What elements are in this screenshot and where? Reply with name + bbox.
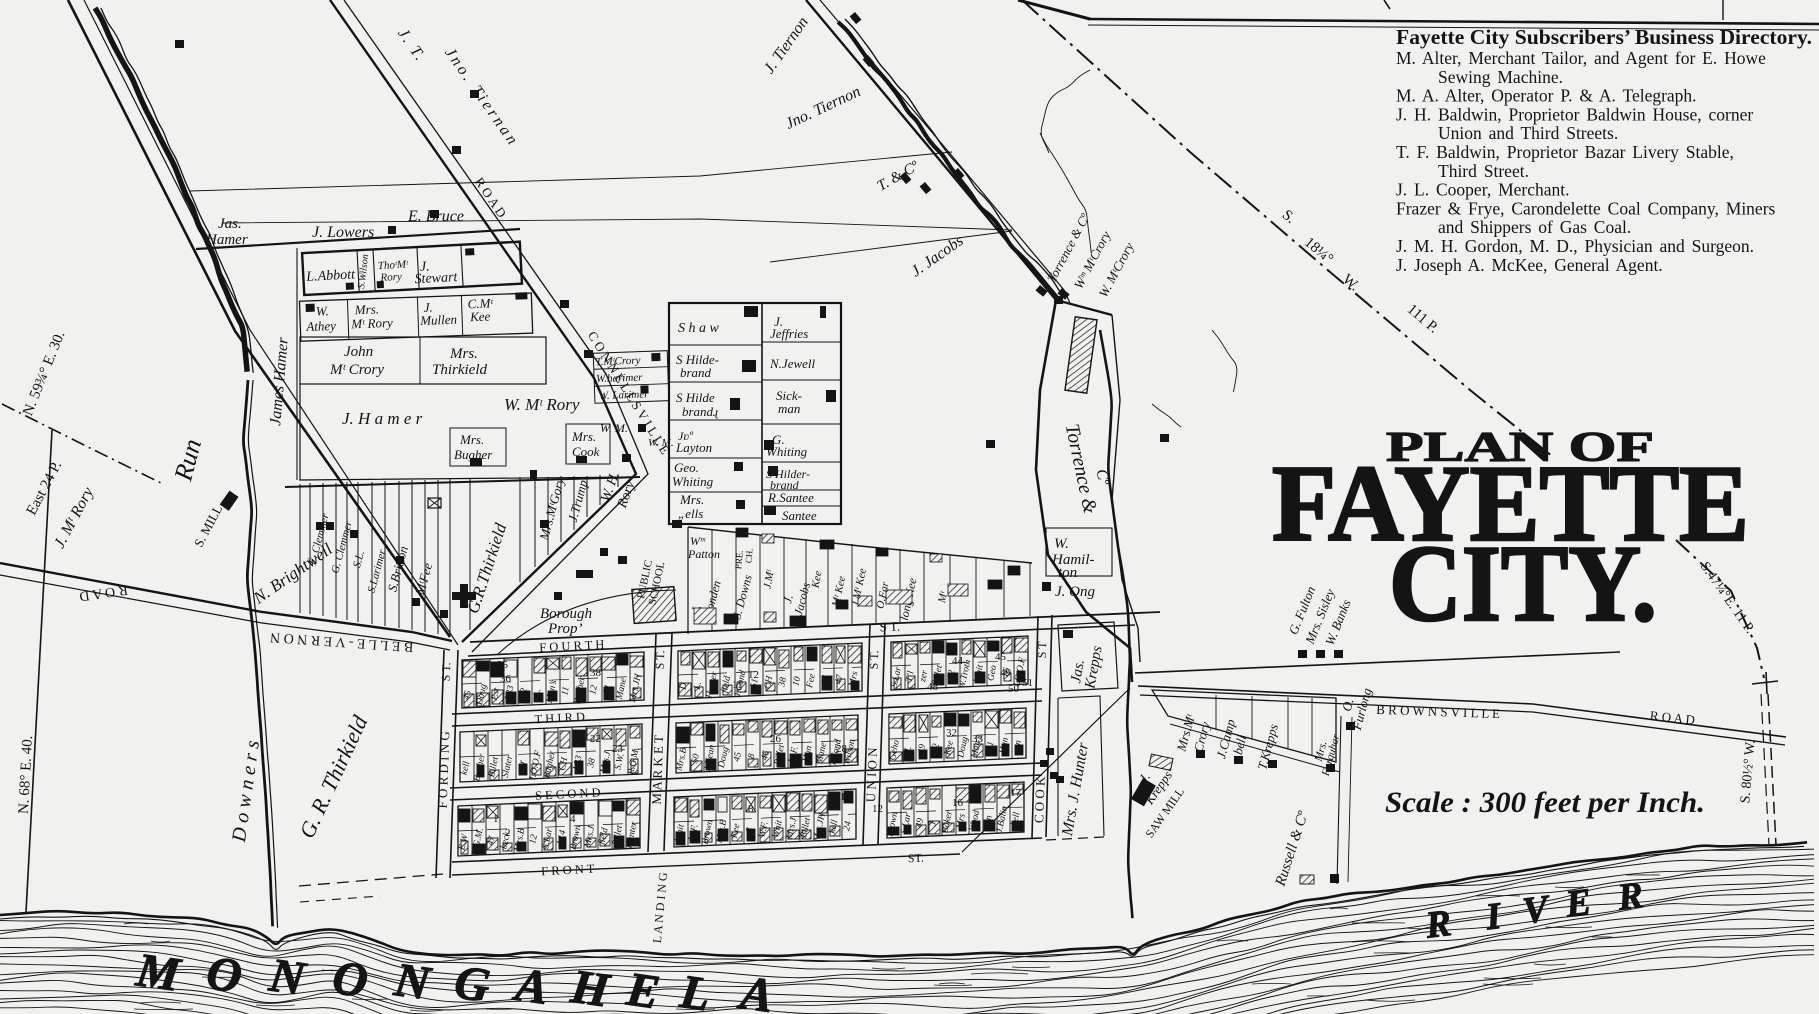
svg-text:J. L. Cooper, Merchant.: J. L. Cooper, Merchant. xyxy=(1396,180,1570,200)
svg-text:N.Jewell: N.Jewell xyxy=(769,356,816,371)
svg-text:L.Abbott: L.Abbott xyxy=(305,267,356,285)
svg-text:M. Alter, Merchant Tailor, and: M. Alter, Merchant Tailor, and Agent for… xyxy=(1396,48,1766,68)
svg-text:12: 12 xyxy=(748,669,759,681)
svg-text:T. F. Baldwin, Proprietor Baza: T. F. Baldwin, Proprietor Bazar Livery S… xyxy=(1396,142,1734,162)
svg-text:Union and Third Streets.: Union and Third Streets. xyxy=(1438,123,1618,143)
svg-text:S T.: S T. xyxy=(879,618,900,634)
svg-text:Santee: Santee xyxy=(782,508,817,523)
svg-text:Prop’: Prop’ xyxy=(547,621,582,637)
svg-text:Sewing Machine.: Sewing Machine. xyxy=(1438,67,1563,87)
svg-text:R.Santee: R.Santee xyxy=(767,490,814,505)
svg-text:W. Mᵗ Rory: W. Mᵗ Rory xyxy=(504,395,580,414)
svg-text:Mrs.: Mrs. xyxy=(449,346,478,362)
svg-text:S T.: S T. xyxy=(439,662,454,681)
svg-text:brand: brand xyxy=(680,365,712,380)
svg-text:ThoᵗMᵗ: ThoᵗMᵗ xyxy=(378,259,410,273)
svg-text:ton: ton xyxy=(1058,565,1077,581)
svg-text:Fayette City Subscribers’ Busi: Fayette City Subscribers’ Business Direc… xyxy=(1396,25,1812,49)
svg-text:10: 10 xyxy=(840,791,852,803)
svg-text:O: O xyxy=(329,951,371,1008)
svg-text:36: 36 xyxy=(500,673,512,685)
svg-text:and Shippers of Gas Coal.: and Shippers of Gas Coal. xyxy=(1438,217,1631,237)
svg-text:J. M. H. Gordon, M. D., Physic: J. M. H. Gordon, M. D., Physician and Su… xyxy=(1396,236,1754,256)
svg-text:J. H a m e r: J. H a m e r xyxy=(342,409,423,428)
svg-text:32: 32 xyxy=(946,727,957,739)
svg-text:51: 51 xyxy=(1022,677,1033,689)
svg-text:T.MᵗCrory: T.MᵗCrory xyxy=(595,355,640,369)
svg-text:F O R D I N G: F O R D I N G xyxy=(435,731,453,809)
svg-text:John: John xyxy=(344,344,373,360)
svg-text:Geo.: Geo. xyxy=(674,460,699,475)
svg-text:S Hilde: S Hilde xyxy=(676,390,715,405)
svg-text:Scale : 300 feet per Inch.: Scale : 300 feet per Inch. xyxy=(1385,786,1705,819)
svg-text:J. H. Baldwin, Proprietor Bald: J. H. Baldwin, Proprietor Baldwin House,… xyxy=(1396,104,1753,124)
svg-text:4: 4 xyxy=(570,813,576,825)
svg-text:J. Ong: J. Ong xyxy=(1055,584,1095,600)
svg-text:F R O N T: F R O N T xyxy=(541,862,595,879)
svg-text:S T.: S T. xyxy=(867,650,882,669)
svg-text:ST.: ST. xyxy=(907,851,924,866)
svg-text:28: 28 xyxy=(836,743,848,755)
svg-text:45: 45 xyxy=(995,651,1007,663)
svg-text:23: 23 xyxy=(612,743,624,755)
svg-text:38: 38 xyxy=(590,667,602,679)
svg-text:Third Street.: Third Street. xyxy=(1438,161,1529,181)
svg-text:J. Joseph A. McKee, General Ag: J. Joseph A. McKee, General Agent. xyxy=(1396,255,1663,275)
svg-text:W. M.: W. M. xyxy=(600,421,628,435)
svg-text:„ells: „ells xyxy=(678,506,703,521)
svg-text:48: 48 xyxy=(927,681,939,693)
svg-text:R: R xyxy=(1614,874,1645,919)
svg-text:49: 49 xyxy=(1000,667,1012,679)
svg-text:Thirkield: Thirkield xyxy=(432,362,487,378)
svg-text:man: man xyxy=(778,401,800,416)
svg-text:16: 16 xyxy=(952,797,964,809)
svg-text:CH.: CH. xyxy=(743,548,754,564)
svg-text:Mrs.: Mrs. xyxy=(459,432,484,447)
svg-text:50: 50 xyxy=(1008,683,1020,695)
svg-text:M. A. Alter, Operator P. & A.: M. A. Alter, Operator P. & A. Telegraph. xyxy=(1396,86,1697,106)
svg-text:33: 33 xyxy=(972,733,984,745)
svg-text:8: 8 xyxy=(748,803,754,815)
svg-text:W.: W. xyxy=(316,303,329,318)
svg-text:17: 17 xyxy=(1010,787,1022,799)
svg-text:CITY.: CITY. xyxy=(1389,523,1657,644)
svg-text:S T.: S T. xyxy=(653,650,668,669)
svg-text:44: 44 xyxy=(952,655,964,667)
svg-text:Mullen: Mullen xyxy=(419,312,457,328)
svg-text:Mᵗ Crory: Mᵗ Crory xyxy=(329,362,384,378)
svg-text:S T: S T xyxy=(1035,641,1050,659)
svg-text:Kee: Kee xyxy=(469,309,491,325)
svg-text:2: 2 xyxy=(505,827,511,839)
svg-text:35: 35 xyxy=(497,659,509,671)
svg-text:Wᵐ: Wᵐ xyxy=(690,534,706,548)
svg-text:Athey: Athey xyxy=(305,318,336,334)
svg-text:Mᵗ Rory: Mᵗ Rory xyxy=(350,315,393,331)
svg-text:W.: W. xyxy=(1054,536,1069,552)
svg-text:1: 1 xyxy=(493,813,499,825)
svg-text:U N I O N: U N I O N xyxy=(863,747,880,803)
svg-text:T H I R D: T H I R D xyxy=(534,710,585,727)
svg-text:W.harimer: W.harimer xyxy=(596,372,643,386)
svg-text:51: 51 xyxy=(985,741,997,752)
svg-text:Patton: Patton xyxy=(687,547,720,561)
svg-text:26: 26 xyxy=(770,733,782,745)
svg-text:R: R xyxy=(1422,902,1453,947)
svg-text:O: O xyxy=(203,946,245,1003)
svg-text:Jeffries: Jeffries xyxy=(770,326,808,341)
svg-text:Mrs.: Mrs. xyxy=(679,492,704,507)
svg-text:Layton: Layton xyxy=(675,440,712,455)
svg-text:Hamer: Hamer xyxy=(205,232,248,248)
svg-text:Frazer & Frye, Carondelette Co: Frazer & Frye, Carondelette Coal Company… xyxy=(1396,198,1776,218)
svg-text:S h a w: S h a w xyxy=(678,321,720,336)
svg-text:brandɻ: brandɻ xyxy=(682,404,719,419)
svg-text:M A R K E T: M A R K E T xyxy=(649,735,666,805)
svg-text:Stewart: Stewart xyxy=(414,270,459,287)
svg-text:22: 22 xyxy=(590,733,601,745)
svg-text:12: 12 xyxy=(872,803,883,815)
svg-text:J. Lowers: J. Lowers xyxy=(312,224,374,241)
svg-text:E: E xyxy=(1562,881,1593,926)
svg-text:Whiting: Whiting xyxy=(672,474,714,489)
svg-text:Jas.: Jas. xyxy=(218,216,242,232)
svg-text:11: 11 xyxy=(732,679,743,691)
svg-text:Mrs.: Mrs. xyxy=(571,429,596,444)
svg-text:51: 51 xyxy=(602,684,614,695)
